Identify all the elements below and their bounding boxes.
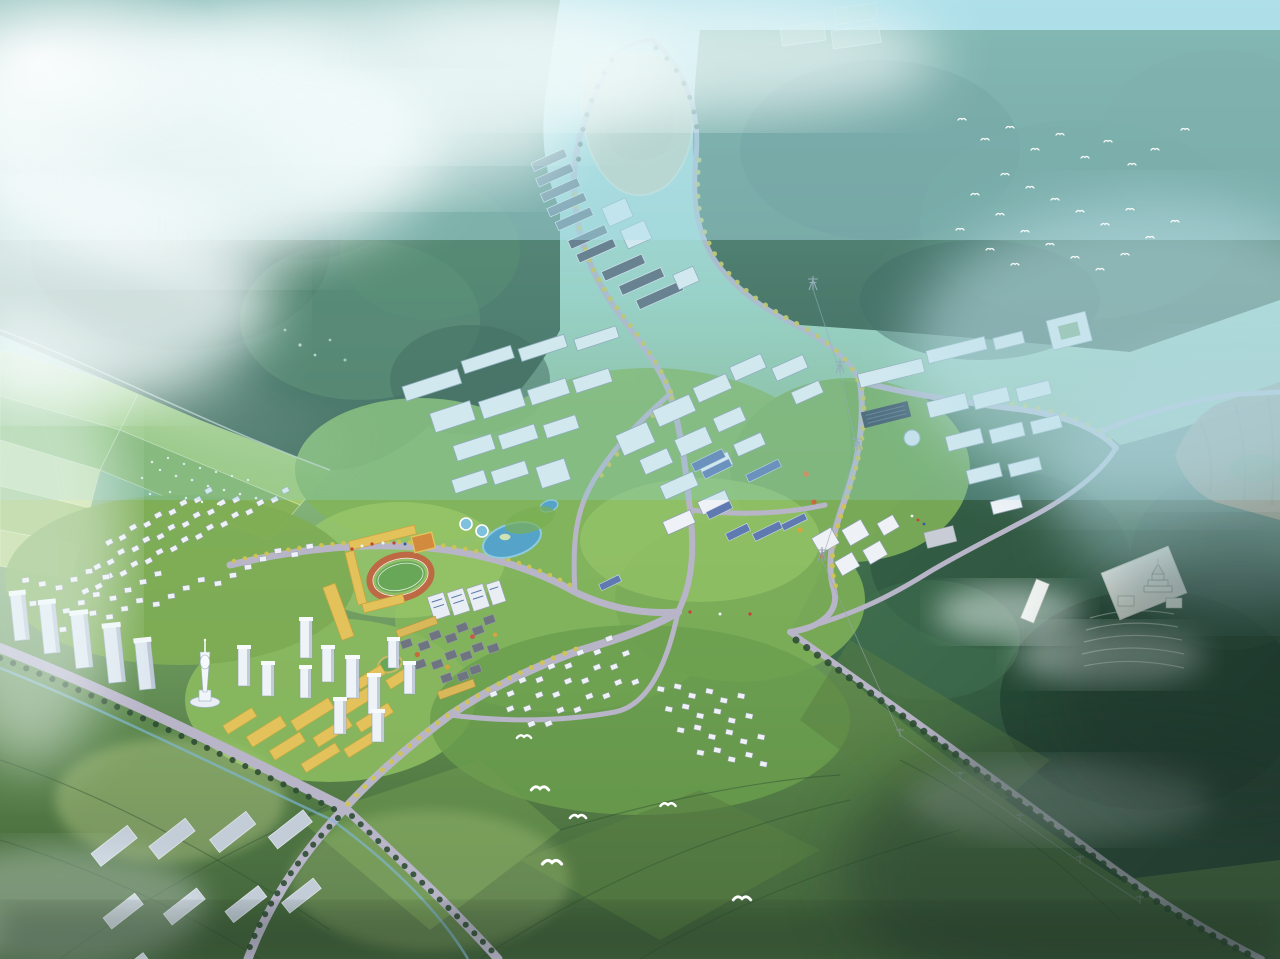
aerial-rendering-stage: [0, 0, 1280, 959]
aerial-rendering: [0, 0, 1280, 959]
tower: [237, 645, 251, 686]
